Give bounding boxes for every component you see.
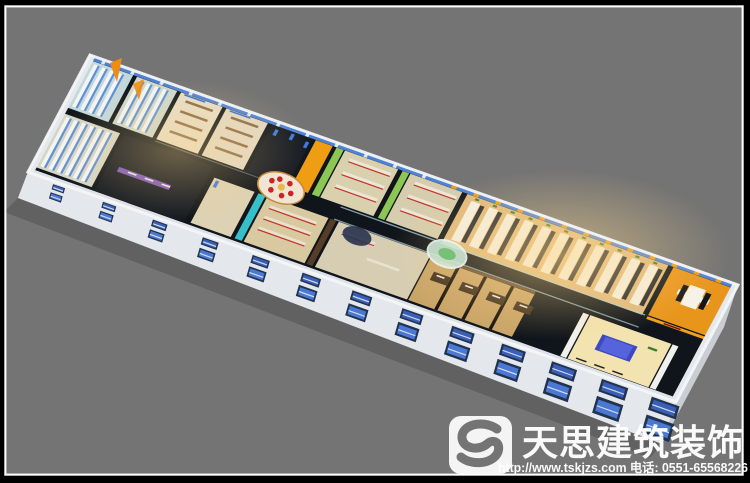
contact-line: http://www.tskjzs.com 电话: 0551-65568226 — [498, 460, 748, 475]
watermark: 天思建筑装饰 http://www.tskjzs.com 电话: 0551-65… — [449, 416, 748, 475]
scene: 天思建筑装饰 http://www.tskjzs.com 电话: 0551-65… — [0, 0, 750, 483]
rendering-canvas: 天思建筑装饰 http://www.tskjzs.com 电话: 0551-65… — [0, 0, 750, 483]
company-name: 天思建筑装饰 — [522, 422, 744, 463]
